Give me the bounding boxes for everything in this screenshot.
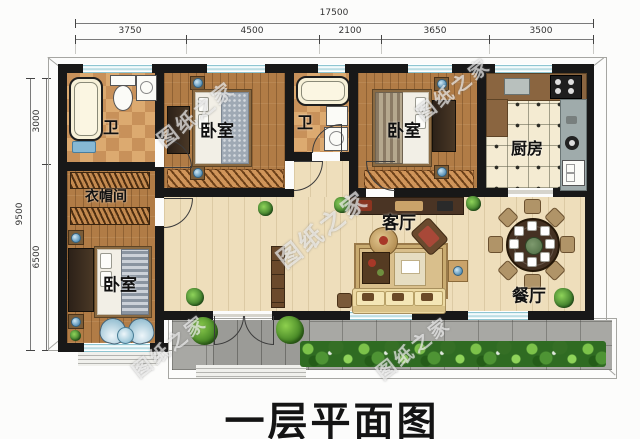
nightstand (434, 165, 449, 179)
room-label-bedroom2: 卧室 (387, 117, 421, 142)
plant (70, 330, 81, 341)
plant (186, 288, 204, 306)
clothes-rack (70, 207, 150, 225)
dim-total-width: 17500 (320, 8, 349, 18)
dim-line-left-segments (46, 78, 47, 350)
sofa (352, 288, 446, 314)
bathtub2 (296, 76, 350, 106)
stove (550, 75, 582, 99)
plant (466, 196, 481, 211)
faucet (566, 116, 577, 124)
room-label-kitchen: 厨房 (511, 135, 543, 159)
dim-seg-1: 3750 (119, 26, 142, 36)
tea-table (117, 327, 134, 344)
stool (337, 293, 352, 308)
dining-chair (524, 199, 541, 214)
dim-total-depth: 9500 (15, 203, 25, 226)
dining-chair (560, 236, 575, 253)
bookshelf (271, 246, 285, 308)
coffee-table (362, 252, 390, 284)
window-kitchen (495, 64, 552, 73)
window-bedroom1 (207, 64, 265, 73)
dim-seg-3: 2100 (339, 26, 362, 36)
room-label-bedroom1: 卧室 (200, 117, 234, 142)
coffee-table2 (394, 252, 426, 286)
dim-seg-left-1: 3000 (32, 110, 42, 133)
room-label-bath1: 卫 (103, 114, 119, 138)
pot (565, 136, 579, 150)
dining-chair (488, 236, 503, 253)
dim-line-left-total (30, 78, 31, 350)
room-label-bath2: 卫 (297, 109, 313, 133)
room-label-living: 客厅 (382, 209, 416, 234)
window-bath2 (318, 64, 345, 73)
bathtub (69, 77, 103, 141)
porch-steps (196, 365, 306, 378)
room-label-dining: 餐厅 (512, 282, 546, 307)
nightstand (68, 314, 84, 329)
nightstand (434, 77, 449, 91)
floor-plan-canvas: 17500 3750 4500 2100 3650 3500 9500 3000… (0, 0, 640, 439)
dim-seg-4: 3650 (424, 26, 447, 36)
bedroom3-wardrobe (68, 248, 94, 312)
dim-line-top-total (75, 23, 593, 24)
bedroom3-steps (78, 352, 158, 366)
window-bath1 (83, 64, 152, 73)
plant (258, 201, 273, 216)
dim-seg-5: 3500 (530, 26, 553, 36)
plant (334, 197, 350, 213)
nightstand (68, 230, 84, 245)
nightstand (190, 166, 205, 180)
room-label-bedroom3: 卧室 (103, 271, 137, 296)
shrub-bed (300, 341, 606, 367)
kitchen-cabinet (486, 99, 508, 137)
kitchen-threshold (508, 190, 553, 194)
bush-right (276, 316, 304, 344)
side-table (448, 260, 468, 282)
toilet-bowl (113, 85, 133, 111)
kitchen-sink (504, 78, 530, 95)
window-bedroom2 (408, 64, 452, 73)
nightstand (190, 76, 205, 90)
plan-title: 一层平面图 (225, 389, 440, 439)
dim-seg-2: 4500 (241, 26, 264, 36)
bedroom1-rug (167, 169, 284, 188)
bath-mat (72, 141, 96, 153)
room-label-cloakroom: 衣帽间 (85, 186, 127, 206)
vanity-sink (326, 106, 348, 126)
window-dining (468, 311, 528, 320)
bedroom2-wardrobe (432, 100, 456, 152)
wall-left (58, 64, 67, 352)
dim-line-top-segments (75, 39, 593, 40)
dim-seg-left-2: 6500 (32, 246, 42, 269)
plant (554, 288, 574, 308)
